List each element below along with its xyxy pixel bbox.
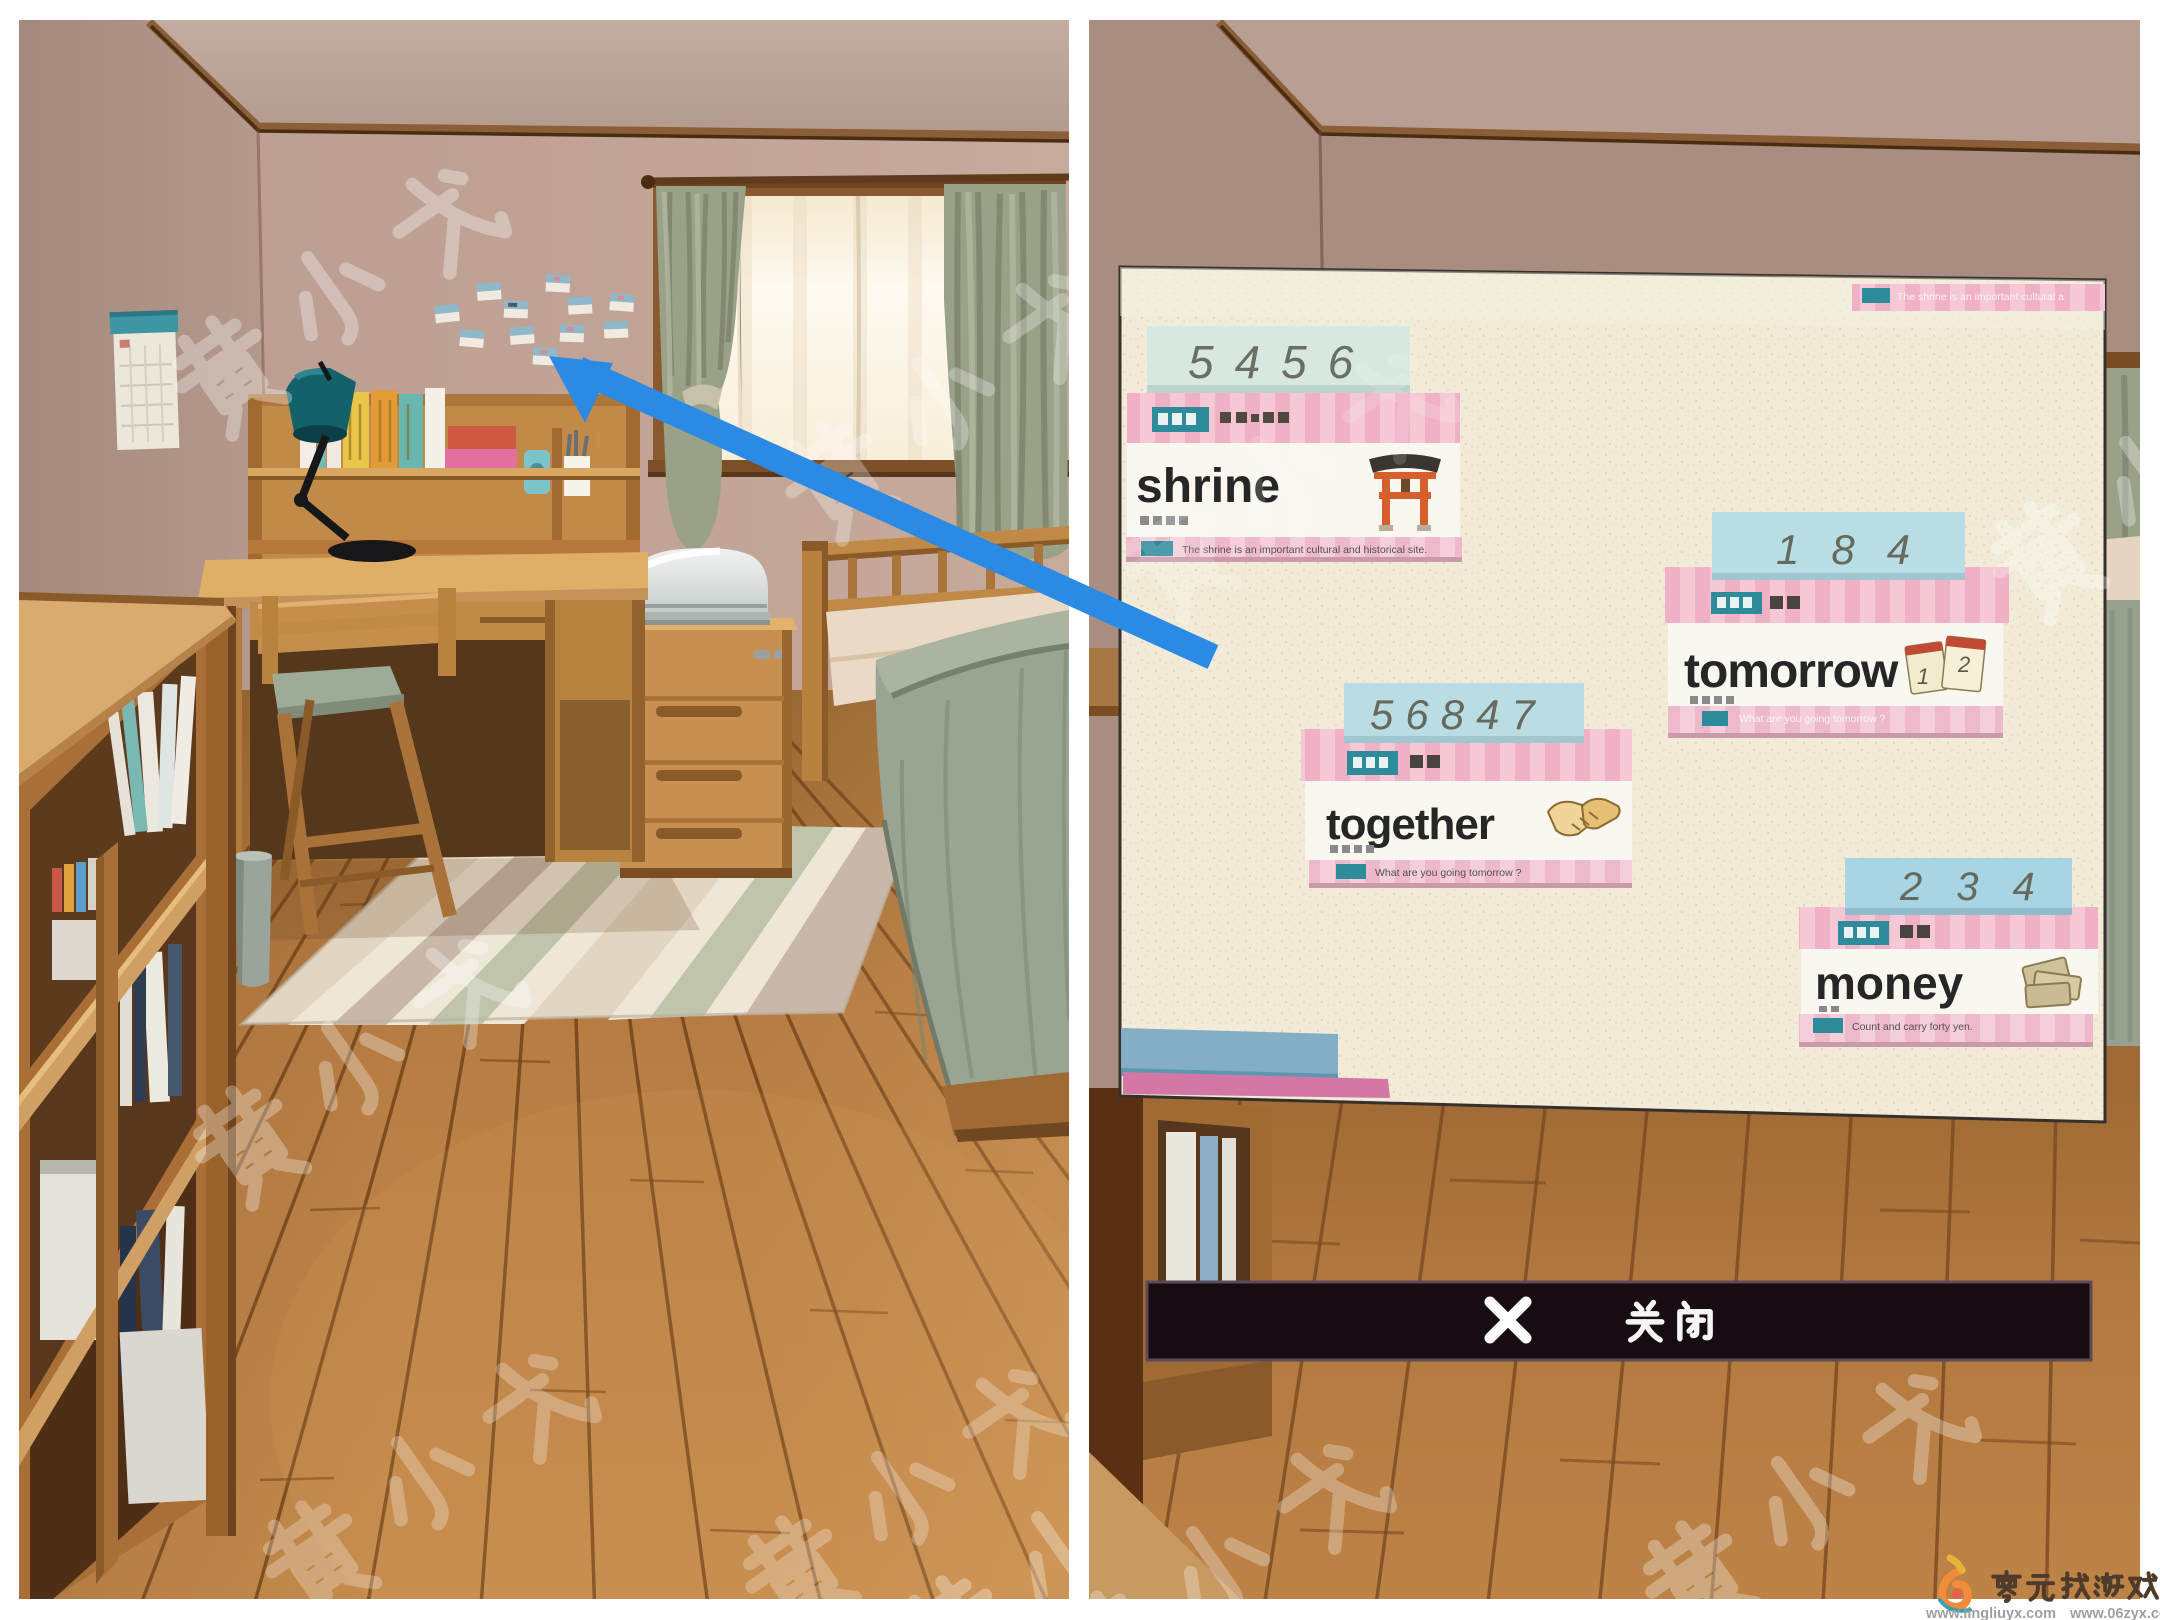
svg-text:56847: 56847: [1370, 691, 1547, 738]
svg-text:1: 1: [1917, 664, 1929, 689]
svg-text:2: 2: [1957, 652, 1970, 677]
svg-text:What are you going tomorrow ?: What are you going tomorrow ?: [1375, 867, 1522, 879]
svg-text:5456: 5456: [1188, 336, 1374, 388]
svg-text:What are you going tomorrow ?: What are you going tomorrow ?: [1739, 713, 1886, 725]
svg-text:Count and carry forty yen.: Count and carry forty yen.: [1852, 1021, 1973, 1033]
svg-text:www.06zyx.com: www.06zyx.com: [2069, 1606, 2160, 1620]
svg-text:The shrine is an important cul: The shrine is an important cultural and …: [1182, 544, 1427, 556]
svg-text:money: money: [1815, 957, 1964, 1009]
svg-text:together: together: [1326, 800, 1495, 849]
svg-text:The shrine is an important cul: The shrine is an important cultural a: [1897, 291, 2064, 303]
svg-text:184: 184: [1776, 526, 1942, 573]
svg-text:234: 234: [1899, 865, 2069, 909]
svg-text:tomorrow: tomorrow: [1684, 645, 1899, 698]
svg-text:www.lingliuyx.com: www.lingliuyx.com: [1925, 1606, 2056, 1620]
